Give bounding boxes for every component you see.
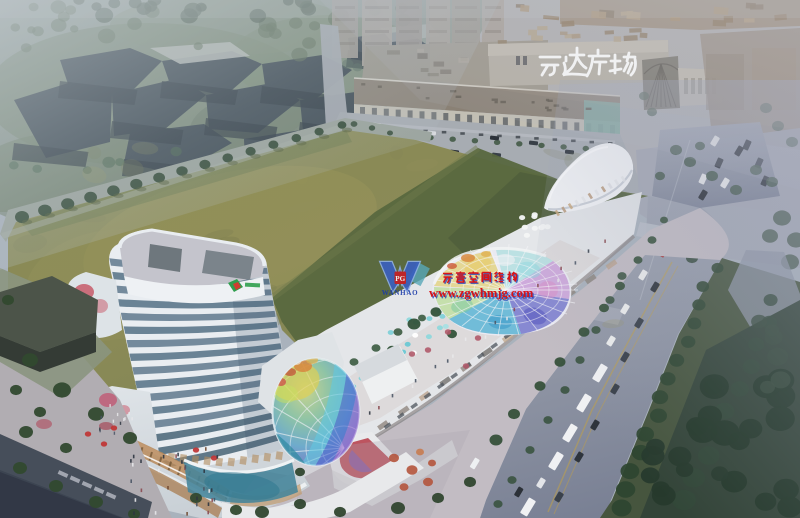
svg-text:www.zgwhmjg.com: www.zgwhmjg.com — [429, 286, 534, 300]
svg-text:WANHAO: WANHAO — [382, 289, 418, 297]
svg-text:PG: PG — [395, 275, 405, 283]
